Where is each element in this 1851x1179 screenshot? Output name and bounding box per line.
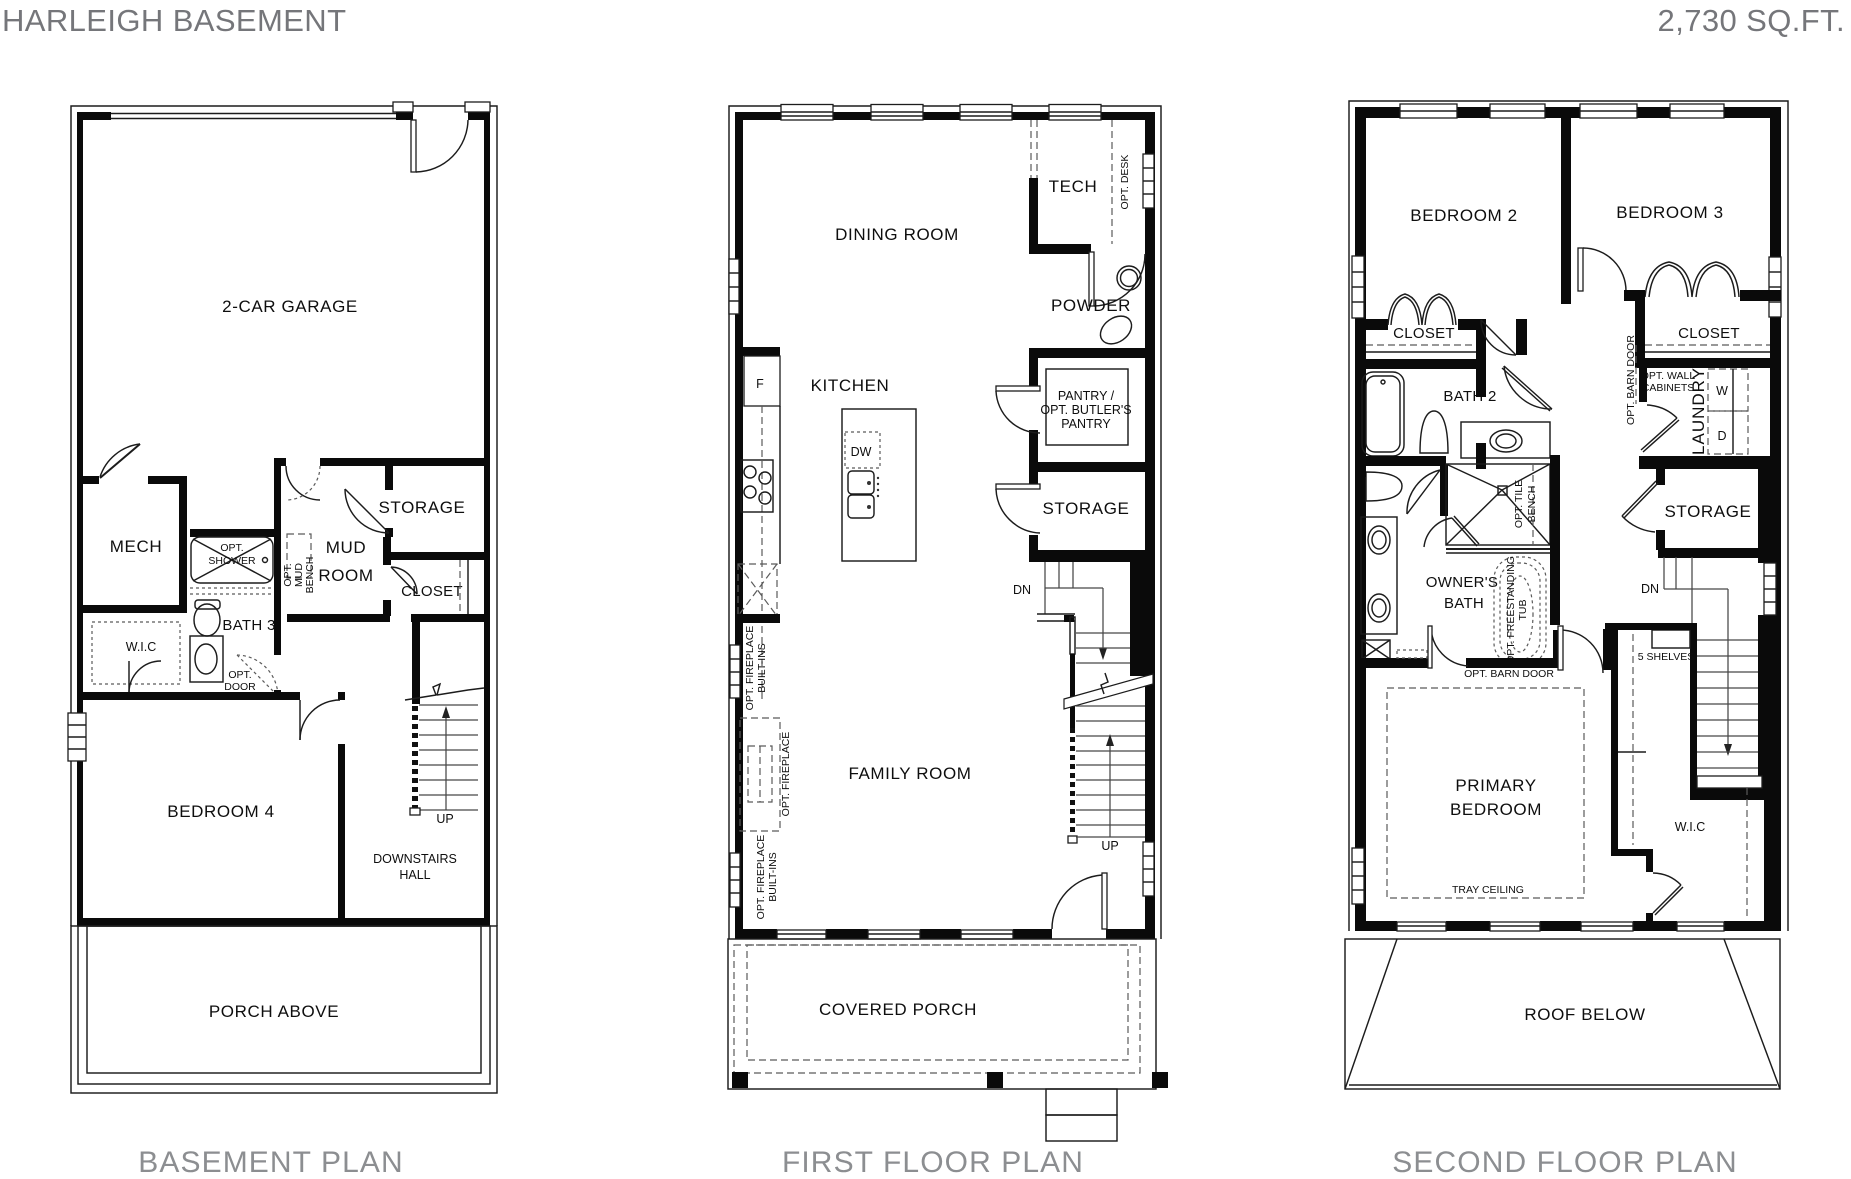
svg-text:PANTRY /: PANTRY / (1058, 389, 1115, 403)
svg-text:BUILT-INS: BUILT-INS (756, 643, 768, 692)
svg-text:BENCH: BENCH (304, 557, 316, 594)
svg-text:STORAGE: STORAGE (1042, 499, 1129, 518)
svg-text:OPT. WALL: OPT. WALL (1641, 370, 1696, 382)
svg-text:PANTRY: PANTRY (1061, 417, 1111, 431)
svg-text:SECOND FLOOR PLAN: SECOND FLOOR PLAN (1392, 1146, 1737, 1179)
svg-text:BENCH: BENCH (1526, 486, 1538, 523)
svg-text:CLOSET: CLOSET (401, 583, 463, 600)
svg-text:W.I.C: W.I.C (126, 640, 157, 654)
svg-text:BATH 2: BATH 2 (1443, 388, 1496, 405)
svg-text:ROOF BELOW: ROOF BELOW (1524, 1005, 1645, 1024)
svg-text:SHOWER: SHOWER (208, 555, 256, 567)
svg-text:BASEMENT PLAN: BASEMENT PLAN (138, 1146, 404, 1179)
svg-text:5 SHELVES: 5 SHELVES (1638, 651, 1694, 663)
svg-text:DN: DN (1641, 582, 1659, 596)
svg-text:BEDROOM 2: BEDROOM 2 (1410, 206, 1517, 225)
svg-text:OPT. BARN DOOR: OPT. BARN DOOR (1464, 668, 1554, 680)
svg-text:BATH 3: BATH 3 (222, 617, 275, 634)
svg-text:DINING ROOM: DINING ROOM (835, 225, 959, 244)
svg-text:FIRST FLOOR PLAN: FIRST FLOOR PLAN (782, 1146, 1084, 1179)
svg-text:BUILT-INS: BUILT-INS (767, 852, 779, 901)
svg-text:MECH: MECH (110, 537, 162, 556)
svg-text:FAMILY ROOM: FAMILY ROOM (848, 764, 971, 783)
svg-text:TRAY CEILING: TRAY CEILING (1452, 884, 1524, 896)
svg-text:PORCH ABOVE: PORCH ABOVE (209, 1002, 339, 1021)
svg-text:BEDROOM: BEDROOM (1450, 800, 1542, 819)
svg-text:ROOM: ROOM (318, 566, 373, 585)
svg-text:UP: UP (436, 812, 453, 826)
svg-text:2-CAR GARAGE: 2-CAR GARAGE (222, 297, 358, 316)
svg-text:CLOSET: CLOSET (1678, 325, 1740, 342)
svg-text:KITCHEN: KITCHEN (811, 376, 890, 395)
svg-text:BEDROOM 3: BEDROOM 3 (1616, 203, 1723, 222)
svg-text:MUD: MUD (326, 538, 367, 557)
svg-text:OWNER'S: OWNER'S (1426, 574, 1498, 591)
svg-text:PRIMARY: PRIMARY (1455, 776, 1536, 795)
svg-text:OPT. BUTLER'S: OPT. BUTLER'S (1040, 403, 1131, 417)
svg-text:STORAGE: STORAGE (378, 498, 465, 517)
svg-text:W.I.C: W.I.C (1675, 820, 1706, 834)
svg-text:OPT. TILE: OPT. TILE (1513, 480, 1525, 528)
svg-text:HARLEIGH BASEMENT: HARLEIGH BASEMENT (2, 3, 346, 38)
svg-text:DN: DN (1013, 583, 1031, 597)
svg-text:DW: DW (851, 445, 872, 459)
svg-text:HALL: HALL (399, 868, 430, 882)
svg-text:OPT.: OPT. (228, 669, 251, 681)
svg-text:POWDER: POWDER (1051, 296, 1131, 315)
svg-text:TUB: TUB (1517, 600, 1529, 621)
svg-text:UP: UP (1101, 839, 1118, 853)
svg-text:CABINETS: CABINETS (1642, 382, 1695, 394)
svg-text:D: D (1717, 429, 1726, 443)
svg-text:OPT. FIREPLACE: OPT. FIREPLACE (755, 835, 767, 920)
svg-text:OPT. FIREPLACE: OPT. FIREPLACE (780, 732, 792, 817)
svg-text:2,730 SQ.FT.: 2,730 SQ.FT. (1658, 3, 1845, 38)
svg-text:TECH: TECH (1049, 177, 1098, 196)
svg-text:STORAGE: STORAGE (1664, 502, 1751, 521)
svg-text:OPT. BARN DOOR: OPT. BARN DOOR (1625, 335, 1637, 425)
svg-text:OPT.: OPT. (220, 542, 243, 554)
svg-text:OPT. FREESTANDING: OPT. FREESTANDING (1505, 556, 1517, 664)
svg-text:CLOSET: CLOSET (1393, 325, 1455, 342)
svg-text:COVERED PORCH: COVERED PORCH (819, 1000, 977, 1019)
svg-text:DOOR: DOOR (224, 681, 256, 693)
svg-text:OPT. FIREPLACE: OPT. FIREPLACE (744, 626, 756, 711)
svg-text:BEDROOM 4: BEDROOM 4 (167, 802, 274, 821)
svg-text:W: W (1716, 384, 1728, 398)
svg-text:BATH: BATH (1444, 595, 1484, 612)
svg-text:OPT. DESK: OPT. DESK (1119, 155, 1131, 210)
svg-text:DOWNSTAIRS: DOWNSTAIRS (373, 852, 457, 866)
svg-text:F: F (756, 377, 764, 391)
